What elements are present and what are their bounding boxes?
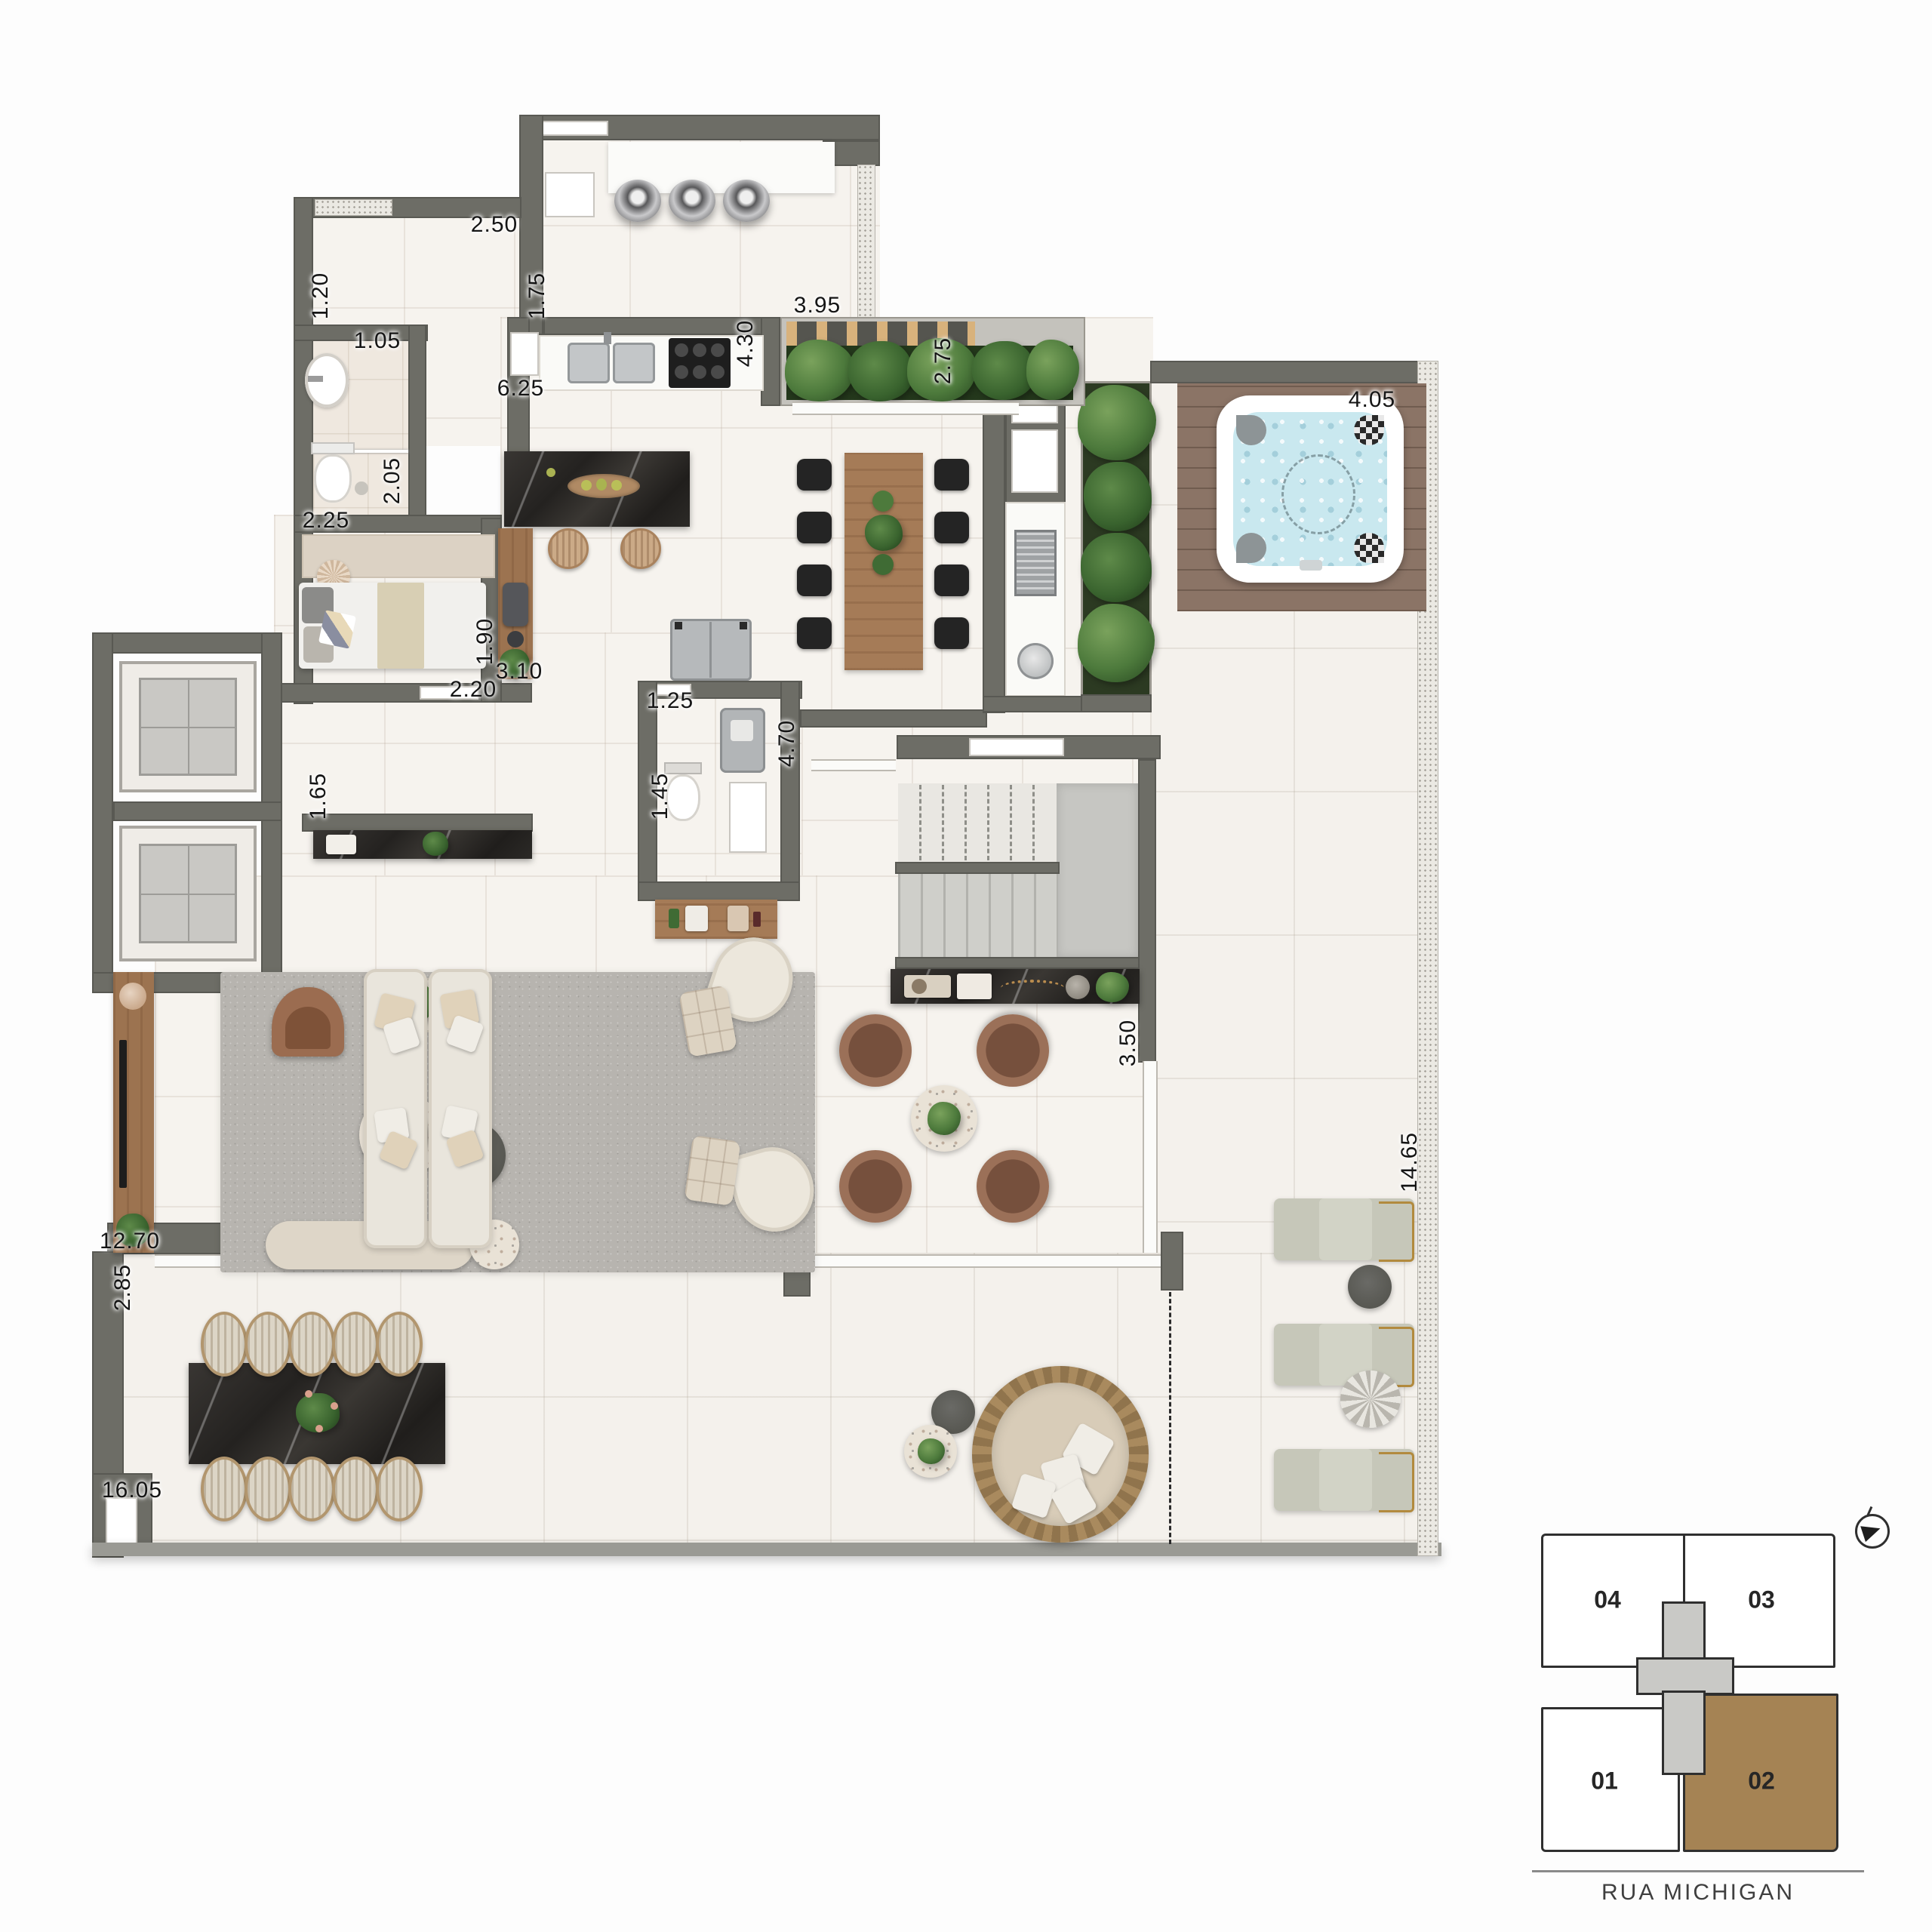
ottoman — [684, 1135, 740, 1206]
plant — [1081, 533, 1152, 602]
dimension-label: 12.70 — [100, 1229, 160, 1254]
decor-bowl — [119, 983, 146, 1010]
cup — [912, 979, 927, 994]
dimension-label: 1.65 — [306, 773, 331, 820]
elevator-shaft — [119, 661, 257, 792]
outdoor-chair — [288, 1457, 335, 1521]
outdoor-chair — [245, 1312, 291, 1377]
hot-tub-jet — [1354, 533, 1384, 563]
wall — [408, 325, 426, 533]
console-tray — [326, 835, 356, 854]
toilet-tank — [311, 442, 355, 454]
dome-hood — [723, 180, 770, 222]
flower — [305, 1390, 312, 1398]
outdoor-chair — [288, 1312, 335, 1377]
sun-lounger — [1274, 1449, 1414, 1511]
sun-lounger — [1274, 1324, 1414, 1386]
wall — [92, 632, 282, 654]
boundary-dashed-line — [1169, 1292, 1171, 1544]
hot-tub-control — [1300, 560, 1322, 571]
dining-chair — [934, 459, 969, 491]
outdoor-sink — [1017, 643, 1054, 679]
outdoor-chair — [332, 1312, 379, 1377]
plant — [1026, 340, 1079, 400]
dimension-label: 1.05 — [354, 328, 401, 354]
wall — [983, 381, 1005, 713]
key-plan-core — [1662, 1690, 1706, 1775]
window — [510, 332, 539, 376]
dimension-label: 2.25 — [303, 508, 349, 534]
flower — [331, 1402, 338, 1410]
faucet — [604, 332, 611, 344]
book — [957, 974, 992, 999]
outdoor-chair — [332, 1457, 379, 1521]
stair-divider-wall — [895, 862, 1060, 874]
dome-hood — [669, 180, 715, 222]
bed-blanket — [377, 583, 424, 669]
plant — [1084, 462, 1152, 531]
wall — [1138, 759, 1156, 1063]
stair-dashed-tread — [942, 785, 944, 860]
dining-chair — [797, 565, 832, 596]
stair-dashed-tread — [987, 785, 989, 860]
floor-plan-canvas: 2.50 1.20 1.75 1.05 6.25 3.95 4.30 2.75 … — [0, 0, 1932, 1932]
key-plan-core — [1636, 1657, 1734, 1695]
lounger-backrest — [1319, 1198, 1372, 1260]
kitchen-sink — [613, 343, 655, 383]
key-plan-unit-label: 04 — [1594, 1586, 1621, 1614]
door-threshold — [811, 759, 896, 771]
bottle-tray — [728, 906, 749, 931]
dining-chair — [797, 617, 832, 649]
dimension-label: 3.10 — [496, 659, 543, 685]
plant — [1078, 385, 1156, 460]
laundry-sink — [545, 172, 595, 217]
burner — [675, 365, 688, 379]
round-daybed — [972, 1366, 1149, 1543]
burner — [693, 343, 706, 357]
fridge-hinge — [740, 622, 747, 629]
fruit — [581, 480, 592, 491]
dimension-label: 2.20 — [450, 677, 497, 703]
hot-tub — [1217, 395, 1404, 583]
barbecue-grill — [1014, 530, 1057, 596]
stair-landing — [1057, 783, 1138, 958]
north-arrow-pointer — [1860, 1521, 1883, 1542]
accent-pillow — [318, 610, 356, 649]
tv-screen — [119, 1040, 127, 1188]
dimension-label: 16.05 — [102, 1478, 162, 1503]
dimension-label: 1.25 — [647, 688, 694, 714]
hot-tub-jet — [1236, 533, 1266, 563]
stair-upper-flight — [898, 783, 1060, 862]
outdoor-chair — [376, 1312, 423, 1377]
dimension-label: 1.90 — [472, 618, 498, 665]
lounger-backrest — [1319, 1449, 1372, 1511]
elevator-shaft — [119, 826, 257, 961]
key-plan: 04 03 01 02 RUA MICHIGAN — [1532, 1509, 1894, 1917]
street-line — [1532, 1870, 1864, 1872]
wall — [1150, 361, 1425, 383]
hot-tub-jet — [1354, 415, 1384, 445]
wall — [302, 814, 533, 832]
plant-centerpiece — [872, 554, 894, 575]
bottle-tray — [685, 906, 708, 931]
key-plan-unit-label: 01 — [1591, 1767, 1618, 1795]
dining-chair — [797, 459, 832, 491]
fruit — [546, 468, 555, 477]
window — [106, 1497, 137, 1544]
plant — [423, 832, 448, 856]
dimension-label: 2.05 — [380, 457, 405, 504]
vase — [1066, 975, 1090, 999]
dimension-label: 14.65 — [1397, 1132, 1423, 1192]
kitchen-sink — [568, 343, 610, 383]
burner — [693, 365, 706, 379]
flower — [315, 1425, 323, 1432]
coffee-machine — [503, 583, 528, 626]
burner — [711, 343, 724, 357]
wall — [92, 632, 113, 993]
street-label: RUA MICHIGAN — [1601, 1880, 1795, 1906]
cabinet-niche — [1011, 429, 1058, 493]
door-opening — [969, 738, 1064, 756]
stair-dashed-tread — [1032, 785, 1035, 860]
faucet — [308, 376, 323, 382]
dimension-label: 6.25 — [497, 376, 544, 401]
dome-hood — [614, 180, 661, 222]
wall-pier — [1161, 1232, 1183, 1291]
armchair-seat — [285, 1007, 331, 1049]
dining-chair — [934, 617, 969, 649]
bottle — [669, 909, 679, 928]
wall — [983, 696, 1082, 712]
dimension-label: 1.75 — [525, 272, 550, 319]
console-tray — [904, 975, 951, 998]
dimension-label: 3.50 — [1115, 1020, 1141, 1066]
north-arrow-icon — [1855, 1514, 1890, 1549]
decor-chain — [1001, 980, 1064, 996]
outdoor-chair — [201, 1312, 248, 1377]
dimension-label: 4.30 — [733, 320, 758, 367]
toilet — [314, 454, 352, 503]
dining-chair — [797, 512, 832, 543]
lounger-frame — [1379, 1452, 1414, 1512]
dimension-label: 1.20 — [308, 272, 334, 319]
plant — [785, 340, 854, 401]
hot-tub-seat-outline — [1281, 454, 1355, 534]
powder-basin-cabinet — [720, 708, 765, 773]
key-plan-unit-label: 02 — [1748, 1767, 1775, 1795]
sun-lounger — [1274, 1198, 1414, 1260]
dimension-label: 3.95 — [794, 293, 841, 318]
stair-dashed-tread — [964, 785, 967, 860]
outdoor-chair — [376, 1457, 423, 1521]
wall — [895, 957, 1155, 969]
cooktop — [669, 338, 731, 388]
wall — [543, 317, 764, 335]
wall — [1081, 694, 1152, 712]
shower-drain — [355, 481, 368, 495]
burner — [711, 365, 724, 379]
powder-basin — [731, 720, 753, 741]
dimension-label: 4.05 — [1349, 387, 1395, 413]
window-sill — [792, 401, 1019, 415]
plant — [918, 1438, 945, 1464]
fridge-hinge — [675, 622, 682, 629]
lounger-frame — [1379, 1201, 1414, 1262]
wall — [780, 681, 800, 901]
stair-dashed-tread — [1010, 785, 1012, 860]
sliding-glass-door — [1143, 1061, 1158, 1253]
refrigerator — [670, 619, 752, 681]
plant — [848, 341, 913, 401]
parapet-wall — [92, 1543, 1441, 1556]
dining-chair — [934, 512, 969, 543]
dimension-label: 2.85 — [110, 1264, 136, 1311]
stair-lower-flight — [898, 874, 1058, 957]
burner — [675, 343, 688, 357]
plant-centerpiece — [865, 515, 903, 551]
wall — [800, 709, 987, 728]
coffee-grinder — [507, 631, 524, 648]
outdoor-chair — [245, 1457, 291, 1521]
plant — [928, 1102, 961, 1135]
plant — [1096, 972, 1129, 1002]
dimension-label: 4.70 — [774, 720, 800, 767]
dimension-label: 2.75 — [931, 337, 956, 384]
wall — [113, 801, 282, 821]
plant — [1078, 604, 1155, 682]
hot-tub-jet — [1236, 415, 1266, 445]
white-agave-plant — [1340, 1371, 1401, 1428]
single-bed — [299, 583, 486, 669]
fruit — [611, 480, 622, 491]
wall — [638, 881, 800, 901]
elevator-cab — [139, 844, 237, 943]
plant-centerpiece — [872, 491, 894, 512]
side-table-dark — [1348, 1265, 1392, 1309]
dimension-label: 1.45 — [648, 773, 673, 820]
fridge-door-split — [709, 622, 712, 678]
fruit — [596, 478, 607, 491]
entry-threshold — [315, 199, 392, 216]
key-plan-unit-label: 03 — [1748, 1586, 1775, 1614]
dining-chair — [934, 565, 969, 596]
bottle — [753, 912, 761, 927]
stair-dashed-tread — [919, 785, 921, 860]
bar-console — [655, 900, 777, 939]
dimension-label: 2.50 — [471, 212, 518, 238]
bar-stool — [620, 528, 661, 569]
elevator-cab — [139, 678, 237, 776]
bar-stool — [548, 528, 589, 569]
outdoor-chair — [201, 1457, 248, 1521]
window — [729, 782, 767, 853]
